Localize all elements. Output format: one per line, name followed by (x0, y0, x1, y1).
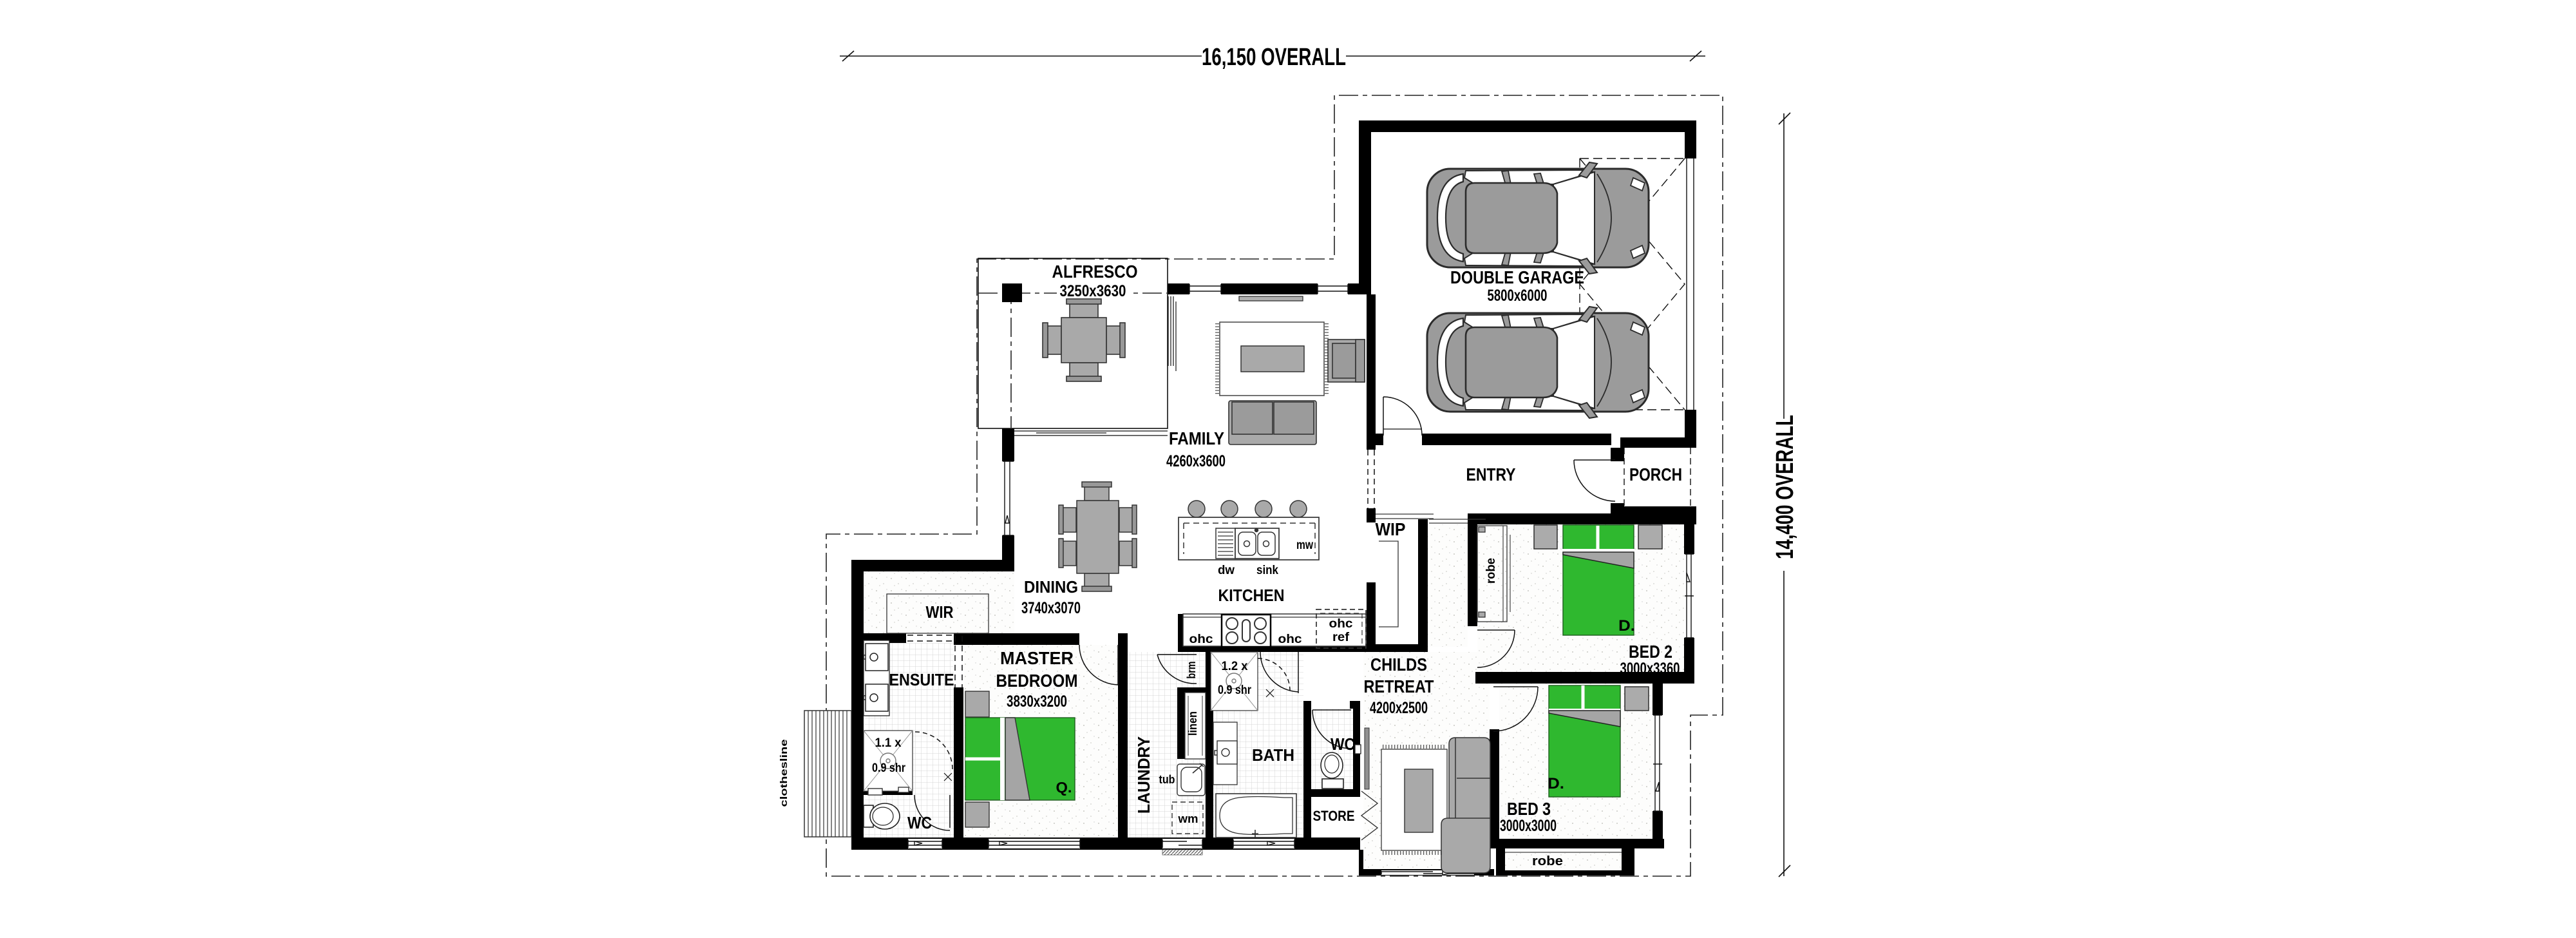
svg-text:0.9 shr: 0.9 shr (1218, 684, 1252, 697)
svg-text:Q.: Q. (1056, 779, 1072, 796)
svg-text:BED 2: BED 2 (1629, 642, 1672, 662)
svg-text:16,150 OVERALL: 16,150 OVERALL (1202, 44, 1346, 71)
svg-text:1.1 x: 1.1 x (875, 736, 902, 750)
svg-text:mw: mw (1296, 539, 1313, 552)
svg-text:brm: brm (1185, 662, 1198, 679)
svg-text:3830x3200: 3830x3200 (1007, 693, 1067, 711)
svg-text:14,400 OVERALL: 14,400 OVERALL (1772, 415, 1799, 559)
svg-text:WC: WC (907, 813, 932, 832)
svg-text:DINING: DINING (1024, 577, 1078, 597)
svg-text:3000x3000: 3000x3000 (1500, 817, 1557, 835)
svg-text:0.9 shr: 0.9 shr (872, 761, 906, 775)
svg-text:PORCH: PORCH (1629, 464, 1682, 484)
svg-text:ohc: ohc (1278, 633, 1302, 646)
svg-text:BED 3: BED 3 (1507, 799, 1551, 819)
svg-text:tub: tub (1159, 773, 1175, 786)
svg-text:RETREAT: RETREAT (1364, 676, 1434, 696)
svg-text:robe: robe (1484, 558, 1498, 584)
svg-text:5800x6000: 5800x6000 (1488, 287, 1548, 305)
svg-text:4260x3600: 4260x3600 (1166, 452, 1226, 470)
svg-text:ohc: ohc (1189, 633, 1213, 646)
svg-text:3740x3070: 3740x3070 (1021, 599, 1081, 617)
svg-text:ENTRY: ENTRY (1466, 464, 1516, 484)
svg-text:clothesline: clothesline (779, 740, 790, 807)
svg-text:LAUNDRY: LAUNDRY (1134, 736, 1153, 814)
svg-text:4200x2500: 4200x2500 (1370, 699, 1428, 717)
svg-text:DOUBLE GARAGE: DOUBLE GARAGE (1450, 267, 1584, 287)
svg-text:ref: ref (1332, 631, 1350, 644)
svg-text:1.2 x: 1.2 x (1222, 660, 1248, 673)
svg-text:STORE: STORE (1313, 808, 1355, 824)
svg-text:3000x3360: 3000x3360 (1620, 660, 1680, 678)
svg-text:MASTER: MASTER (1000, 648, 1074, 668)
svg-text:KITCHEN: KITCHEN (1218, 586, 1285, 605)
svg-text:ENSUITE: ENSUITE (889, 670, 954, 689)
svg-text:BATH: BATH (1252, 745, 1294, 765)
svg-text:CHILDS: CHILDS (1370, 655, 1427, 675)
svg-text:wm: wm (1177, 812, 1198, 825)
svg-text:WIR: WIR (926, 602, 954, 622)
svg-text:3250x3630: 3250x3630 (1060, 282, 1126, 300)
svg-text:sink: sink (1256, 564, 1278, 577)
svg-text:linen: linen (1186, 711, 1199, 736)
svg-text:ALFRESCO: ALFRESCO (1052, 262, 1138, 282)
svg-text:FAMILY: FAMILY (1169, 428, 1224, 448)
svg-text:ohc: ohc (1329, 617, 1353, 631)
svg-text:dw: dw (1218, 564, 1235, 577)
svg-text:robe: robe (1532, 854, 1563, 868)
svg-text:D.: D. (1548, 775, 1564, 792)
svg-text:BEDROOM: BEDROOM (996, 671, 1078, 691)
svg-text:WC: WC (1331, 734, 1355, 754)
svg-text:D.: D. (1618, 617, 1635, 635)
svg-text:WIP: WIP (1376, 519, 1406, 539)
